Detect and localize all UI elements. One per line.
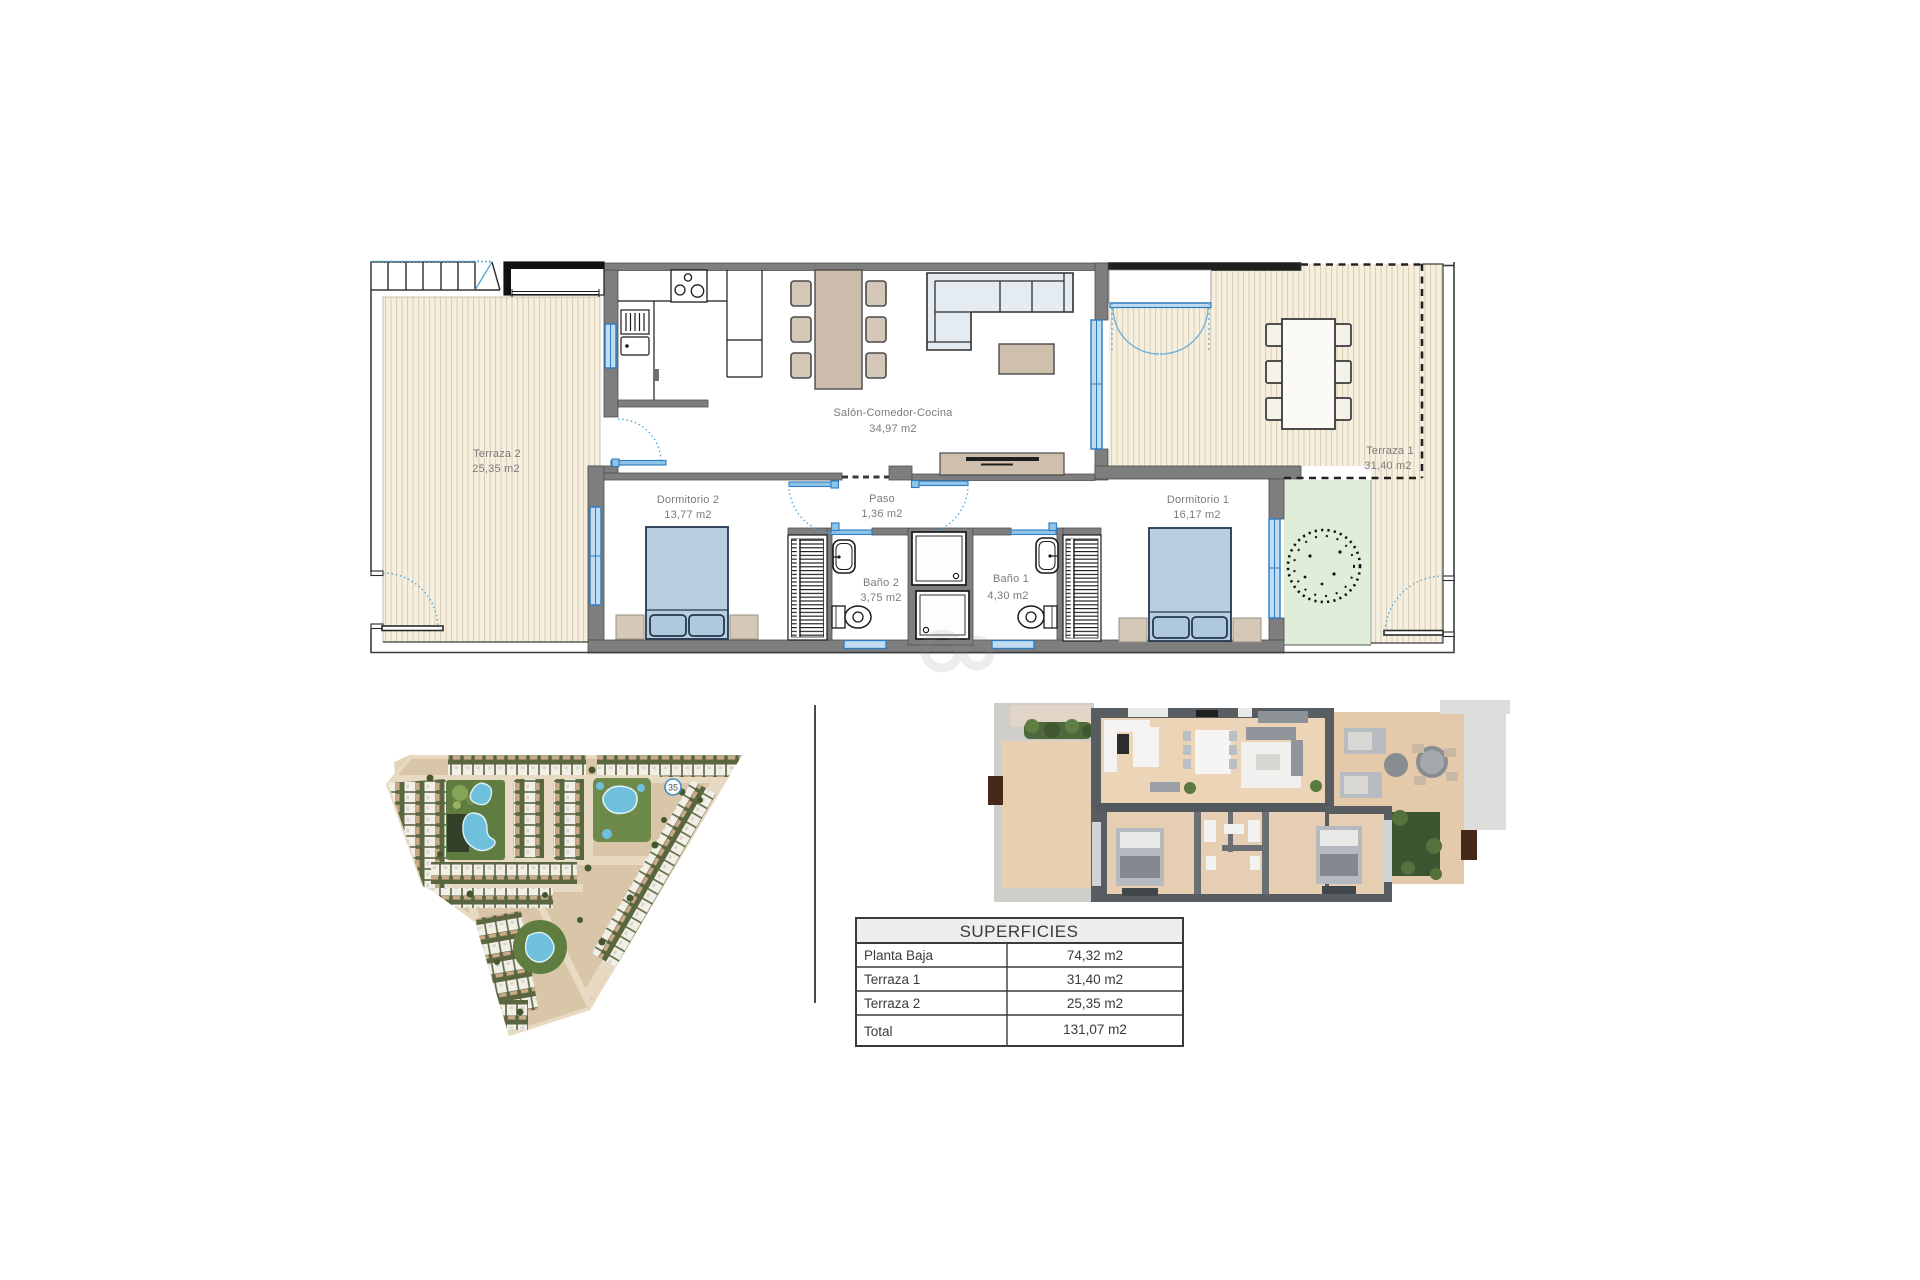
svg-text:Terraza 2: Terraza 2 xyxy=(864,996,920,1011)
svg-text:25,35 m2: 25,35 m2 xyxy=(472,463,519,475)
svg-text:SUPERFICIES: SUPERFICIES xyxy=(960,922,1079,941)
svg-text:Planta Baja: Planta Baja xyxy=(864,948,934,963)
svg-text:Salón-Comedor-Cocina: Salón-Comedor-Cocina xyxy=(834,407,954,419)
svg-text:Baño 2: Baño 2 xyxy=(863,577,899,589)
svg-text:16,17 m2: 16,17 m2 xyxy=(1173,509,1220,521)
svg-text:31,40 m2: 31,40 m2 xyxy=(1067,972,1123,987)
svg-text:Dormitorio 1: Dormitorio 1 xyxy=(1167,494,1229,506)
svg-text:3,75 m2: 3,75 m2 xyxy=(860,592,901,604)
svg-text:Terraza 1: Terraza 1 xyxy=(1366,445,1414,457)
svg-text:Paso: Paso xyxy=(869,493,895,505)
svg-text:1,36 m2: 1,36 m2 xyxy=(861,508,902,520)
svg-text:Baño 1: Baño 1 xyxy=(993,573,1029,585)
svg-text:Dormitorio 2: Dormitorio 2 xyxy=(657,494,719,506)
svg-text:34,97 m2: 34,97 m2 xyxy=(869,423,916,435)
svg-text:31,40 m2: 31,40 m2 xyxy=(1364,460,1411,472)
svg-text:25,35 m2: 25,35 m2 xyxy=(1067,996,1123,1011)
svg-text:74,32 m2: 74,32 m2 xyxy=(1067,948,1123,963)
svg-text:Total: Total xyxy=(864,1024,893,1039)
svg-text:4,30 m2: 4,30 m2 xyxy=(987,590,1028,602)
svg-text:13,77 m2: 13,77 m2 xyxy=(664,509,711,521)
svg-text:Terraza 2: Terraza 2 xyxy=(473,448,521,460)
svg-text:Terraza 1: Terraza 1 xyxy=(864,972,920,987)
svg-text:131,07 m2: 131,07 m2 xyxy=(1063,1022,1127,1037)
svg-text:35: 35 xyxy=(668,783,678,793)
